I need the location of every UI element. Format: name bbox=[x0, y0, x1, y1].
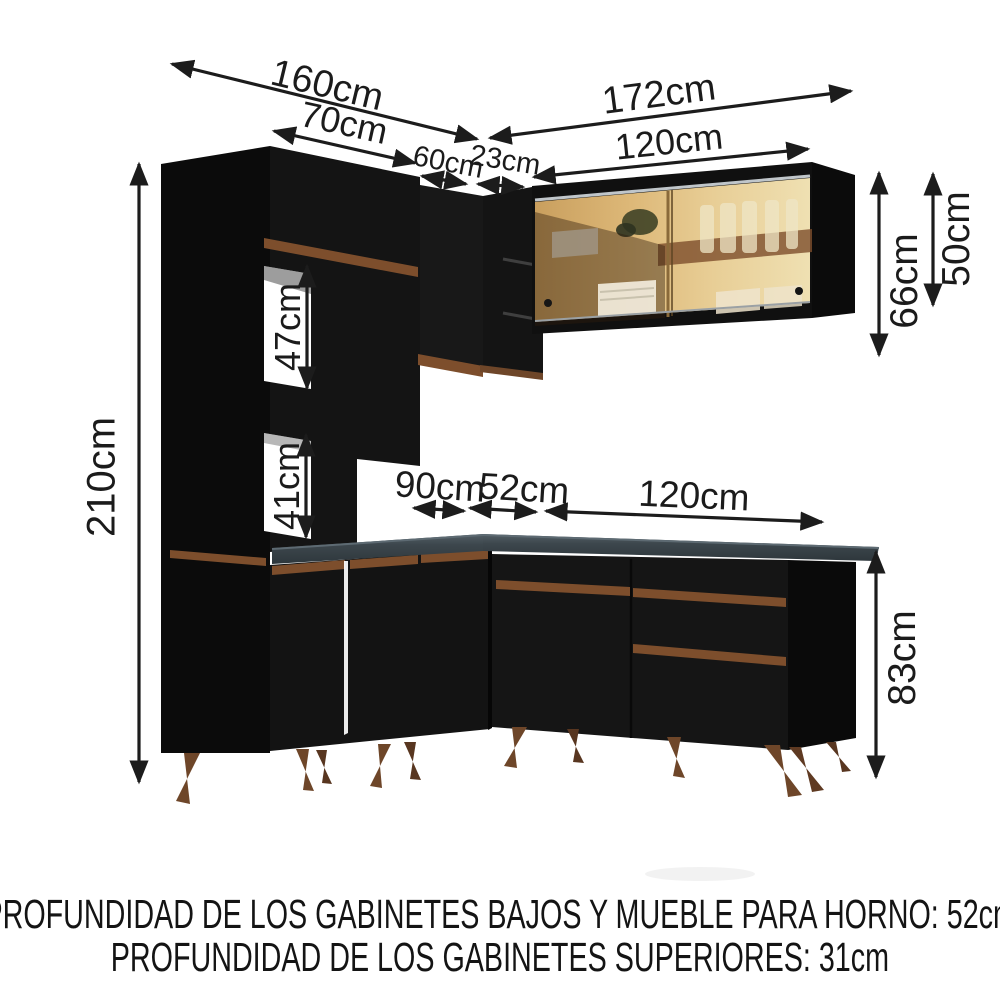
dim-label-lower-niche-height: 41cm bbox=[266, 442, 308, 530]
note-line-1: PROFUNDIDAD DE LOS GABINETES BAJOS Y MUE… bbox=[0, 893, 1000, 936]
dim-label-right-base-width: 120cm bbox=[638, 473, 751, 520]
dim-label-glass-door-height: 50cm bbox=[935, 191, 979, 286]
glass-wall-cabinet bbox=[532, 162, 855, 334]
dim-label-upper-niche-height: 47cm bbox=[267, 283, 309, 371]
product-diagram: 160cm 70cm 172cm 120cm 60cm 23cm 90cm 52… bbox=[0, 0, 1000, 1000]
note-line-2: PROFUNDIDAD DE LOS GABINETES SUPERIORES:… bbox=[111, 936, 889, 979]
upper-cabinet-60 bbox=[418, 185, 483, 377]
dim-label-corner-base-width: 52cm bbox=[478, 465, 571, 512]
base-cabinet-right bbox=[492, 554, 856, 750]
dim-label-total-height: 210cm bbox=[80, 417, 125, 537]
dim-label-base-height: 83cm bbox=[881, 610, 925, 705]
dim-label-left-base-width: 90cm bbox=[394, 463, 487, 510]
floor-shadow bbox=[645, 867, 755, 881]
depth-notes: PROFUNDIDAD DE LOS GABINETES BAJOS Y MUE… bbox=[0, 893, 1000, 979]
dim-label-wall-cabinet-height: 66cm bbox=[883, 233, 927, 328]
